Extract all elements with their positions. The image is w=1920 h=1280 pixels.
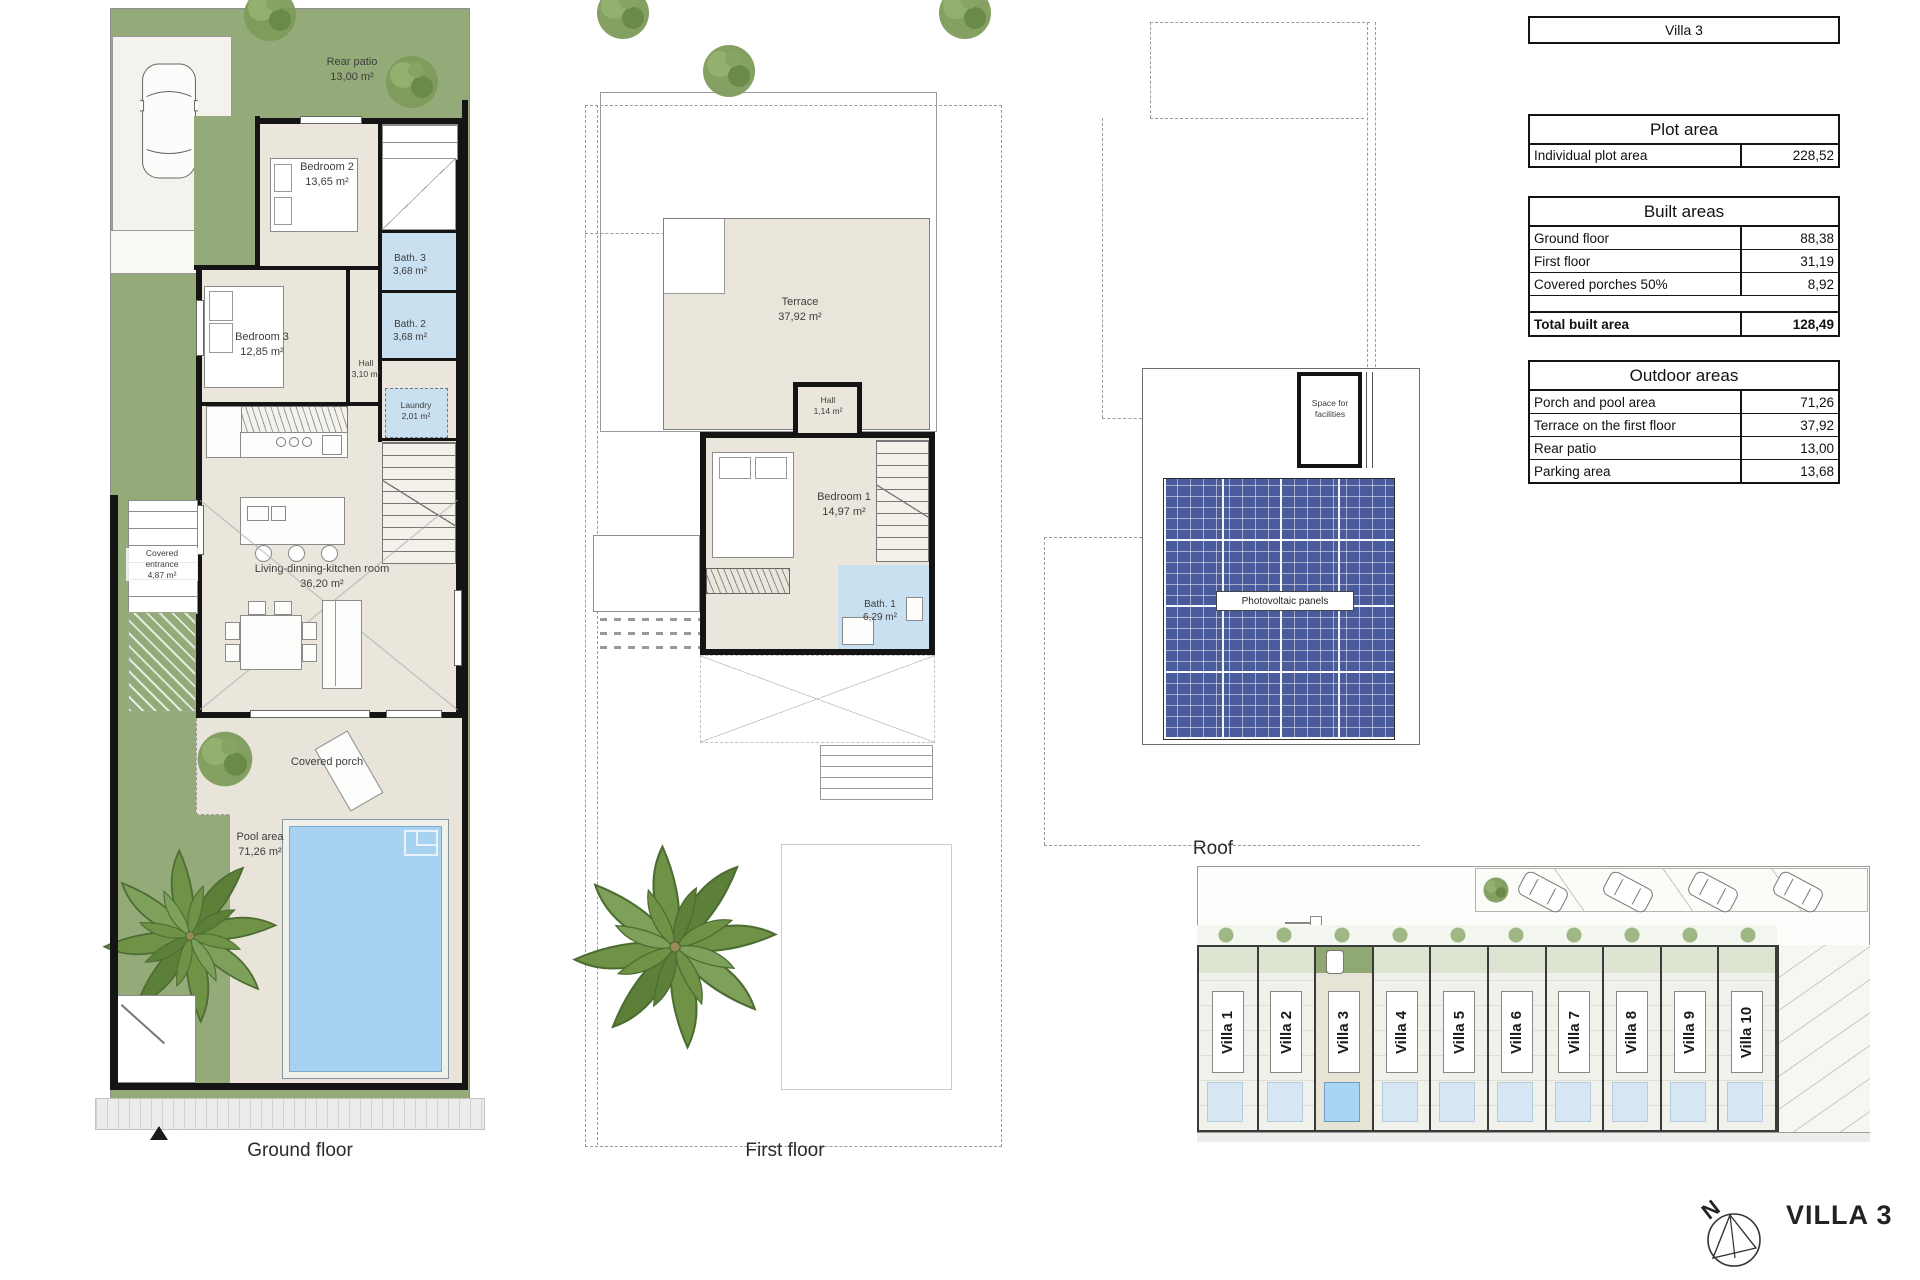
plot-area-title: Plot area: [1530, 116, 1838, 145]
villa-label-box: Villa 10: [1731, 991, 1763, 1073]
gf-building-notch: [194, 116, 260, 270]
site-villa-strip: Villa 8: [1602, 947, 1660, 1130]
pillow: [755, 457, 787, 479]
row-value: 13,00: [1742, 441, 1838, 456]
roof-caption: Roof: [1063, 838, 1363, 860]
chair: [302, 622, 317, 640]
window: [386, 710, 442, 718]
row-label: Rear patio: [1530, 437, 1742, 459]
villa-label-box: Villa 2: [1270, 991, 1302, 1073]
boundary-wall: [462, 100, 468, 1090]
villa-label-box: Villa 8: [1616, 991, 1648, 1073]
table-row: Ground floor 88,38: [1530, 227, 1838, 250]
table-row: Porch and pool area 71,26: [1530, 391, 1838, 414]
villa-label-box: Villa 4: [1386, 991, 1418, 1073]
row-label: Parking area: [1530, 460, 1742, 482]
plot-area-table: Plot area Individual plot area 228,52: [1528, 114, 1840, 168]
row-value: 8,92: [1742, 277, 1838, 292]
ff-ext-steps: [820, 745, 933, 800]
terrace-label: Terrace 37,92 m²: [740, 295, 860, 325]
gf-hall-label: Hall 3,10 m²: [340, 358, 392, 380]
pillow: [209, 291, 233, 321]
roof-rail: [1366, 372, 1367, 468]
row-label: Porch and pool area: [1530, 391, 1742, 413]
villa-label-box: Villa 9: [1674, 991, 1706, 1073]
pillow: [719, 457, 751, 479]
chair: [274, 601, 292, 615]
kitchen-tall-unit: [206, 406, 242, 458]
site-villa-strip-highlighted: Villa 3: [1314, 947, 1372, 1130]
window: [196, 300, 204, 356]
car-icon: [140, 62, 198, 180]
built-areas-table: Built areas Ground floor 88,38 First flo…: [1528, 196, 1840, 337]
ff-step-band: [600, 618, 700, 621]
villa-label-box: Villa 7: [1558, 991, 1590, 1073]
table-row: Terrace on the first floor 37,92: [1530, 414, 1838, 437]
ff-entrance-void: [593, 535, 700, 612]
roof-rail: [1372, 372, 1373, 468]
terrace-notch: [664, 219, 725, 294]
sink-unit: [322, 435, 342, 455]
site-villa-strip: Villa 2: [1257, 947, 1315, 1130]
total-value: 128,49: [1742, 317, 1838, 332]
site-villa-strip: Villa 9: [1660, 947, 1718, 1130]
table-spacer-row: [1530, 296, 1838, 312]
ground-floor-caption: Ground floor: [150, 1140, 450, 1162]
table-row: First floor 31,19: [1530, 250, 1838, 273]
built-areas-title: Built areas: [1530, 198, 1838, 227]
bath3-label: Bath. 3 3,68 m²: [372, 252, 448, 278]
boundary-wall: [110, 1083, 468, 1090]
table-row: Parking area 13,68: [1530, 460, 1838, 482]
gate-area: [113, 995, 196, 1083]
site-villa-strip: Villa 4: [1372, 947, 1430, 1130]
chair: [225, 644, 240, 662]
bath1-label: Bath. 1 6,29 m²: [842, 598, 918, 624]
row-label: Individual plot area: [1530, 145, 1742, 166]
tree-icon: [188, 722, 262, 796]
site-villa-strip: Villa 6: [1487, 947, 1545, 1130]
villa-sheet-label: VILLA 3: [1786, 1200, 1893, 1231]
site-villa-strip: Villa 7: [1545, 947, 1603, 1130]
gf-closet: [382, 124, 458, 160]
chair: [225, 622, 240, 640]
site-tree-band: [1197, 925, 1777, 945]
villa-label-box: Villa 1: [1212, 991, 1244, 1073]
road-arrow: [1285, 922, 1311, 924]
dining-table: [240, 615, 302, 670]
table-row: Rear patio 13,00: [1530, 437, 1838, 460]
burner: [302, 437, 312, 447]
row-label: Terrace on the first floor: [1530, 414, 1742, 436]
first-floor-caption: First floor: [635, 1140, 935, 1162]
covered-entrance-label: Covered entrance 4,87 m²: [126, 548, 198, 581]
roof-dashed: [1150, 22, 1370, 24]
site-parking-right: [1777, 945, 1870, 1132]
tree-icon: [925, 0, 1005, 48]
ff-step-band: [600, 632, 700, 635]
pool-steps: [416, 830, 438, 846]
covered-porch-label: Covered porch: [267, 755, 387, 770]
ff-louvre-window: [706, 568, 790, 594]
bedroom2-label: Bedroom 2 13,65 m²: [267, 160, 387, 190]
bed: [712, 452, 794, 558]
sofa-back: [323, 601, 336, 686]
compass-icon: N: [1690, 1192, 1790, 1280]
table-row: Covered porches 50% 8,92: [1530, 273, 1838, 296]
gf-wall: [382, 358, 456, 361]
roof-dashed: [1150, 118, 1364, 120]
tree-icon: [1478, 872, 1514, 908]
row-label: Ground floor: [1530, 227, 1742, 249]
gf-shower-room: [382, 158, 456, 230]
roof-dashed: [1044, 537, 1142, 539]
site-villa-strip: Villa 5: [1429, 947, 1487, 1130]
car-icon: [1326, 950, 1344, 974]
pillow: [274, 197, 292, 225]
site-sidewalk: [1197, 1132, 1870, 1142]
compass-north-label: N: [1697, 1195, 1725, 1224]
entrance-ramp: [128, 612, 196, 712]
site-villa-strip: Villa 1: [1199, 947, 1257, 1130]
villa-title: Villa 3: [1530, 18, 1838, 42]
chair: [248, 601, 266, 615]
outdoor-areas-title: Outdoor areas: [1530, 362, 1838, 391]
villa-title-box: Villa 3: [1528, 16, 1840, 44]
roof-dashed: [1044, 537, 1046, 845]
table-total-row: Total built area 128,49: [1530, 312, 1838, 335]
ff-porch-roof: [700, 655, 935, 743]
facilities-label: Space for facilities: [1295, 398, 1365, 420]
row-value: 71,26: [1742, 395, 1838, 410]
gf-wall: [382, 438, 456, 441]
row-value: 13,68: [1742, 464, 1838, 479]
total-label: Total built area: [1530, 313, 1742, 335]
row-value: 228,52: [1742, 148, 1838, 163]
ff-hall-label: Hall 1,14 m²: [795, 395, 861, 417]
chair: [302, 644, 317, 662]
gf-wall: [260, 266, 382, 270]
roof-dashed: [1150, 22, 1152, 118]
burner: [276, 437, 286, 447]
burner: [289, 437, 299, 447]
tree-icon: [585, 0, 661, 48]
outdoor-areas-table: Outdoor areas Porch and pool area 71,26 …: [1528, 360, 1840, 484]
window: [300, 116, 362, 124]
kitchen-counter-hatch: [240, 406, 348, 434]
tree-icon: [698, 40, 760, 102]
row-value: 31,19: [1742, 254, 1838, 269]
window: [454, 590, 462, 666]
villa-label-box: Villa 5: [1443, 991, 1475, 1073]
table-row: Individual plot area 228,52: [1530, 145, 1838, 166]
ff-pool-ghost: [781, 844, 952, 1090]
bedroom3-label: Bedroom 3 12,85 m²: [202, 330, 322, 360]
bedroom1-label: Bedroom 1 14,97 m²: [788, 490, 900, 520]
sofa: [322, 600, 362, 689]
row-value: 37,92: [1742, 418, 1838, 433]
boundary-wall: [110, 495, 118, 1090]
roof-dashed: [1102, 418, 1142, 420]
ff-step-band: [600, 646, 700, 649]
pv-label: Photovoltaic panels: [1216, 591, 1354, 611]
bath2-label: Bath. 2 3,68 m²: [372, 318, 448, 344]
row-label: First floor: [1530, 250, 1742, 272]
rear-patio-label: Rear patio 13,00 m²: [292, 55, 412, 85]
floor-plan-sheet: Rear patio 13,00 m² Bath. 3 3,68 m² Bath…: [0, 0, 1920, 1280]
row-label: Covered porches 50%: [1530, 273, 1742, 295]
row-value: 88,38: [1742, 231, 1838, 246]
roof-dashed: [1367, 22, 1369, 372]
laundry-label: Laundry 2,01 m²: [378, 400, 454, 422]
villa-label-box: Villa 3: [1328, 991, 1360, 1073]
entrance-marker: [150, 1126, 168, 1140]
gf-wall: [346, 270, 350, 404]
villa-label-box: Villa 6: [1501, 991, 1533, 1073]
palm-tree-icon: [560, 832, 790, 1062]
site-villa-strips: Villa 1 Villa 2 Villa 3 Villa 4 Villa 5 …: [1197, 945, 1777, 1132]
tree-icon: [230, 0, 310, 50]
site-villa-strip: Villa 10: [1717, 947, 1775, 1130]
sliding-window: [250, 710, 370, 718]
roof-dashed: [1375, 22, 1377, 372]
gate-leaf: [121, 1004, 165, 1044]
roof-dashed: [1102, 118, 1104, 418]
